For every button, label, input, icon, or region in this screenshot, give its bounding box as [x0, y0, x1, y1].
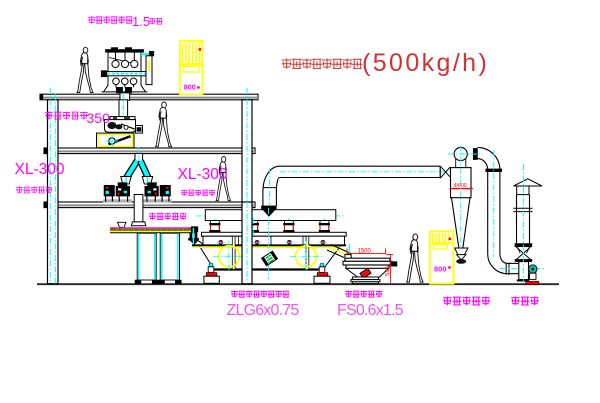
svg-text:ZLG6x0.75: ZLG6x0.75: [227, 302, 300, 319]
svg-text:800: 800: [184, 83, 196, 92]
svg-text:1500: 1500: [358, 249, 372, 255]
svg-text:FS0.6x1.5: FS0.6x1.5: [337, 302, 404, 319]
svg-text:800: 800: [434, 265, 447, 274]
svg-text:(500kg/h): (500kg/h): [362, 49, 489, 77]
svg-text:545: 545: [386, 265, 392, 276]
svg-text:XL-300: XL-300: [15, 161, 65, 178]
svg-text:XL-300: XL-300: [178, 166, 228, 183]
svg-text:1.5: 1.5: [132, 14, 150, 29]
svg-text:350: 350: [87, 110, 111, 126]
